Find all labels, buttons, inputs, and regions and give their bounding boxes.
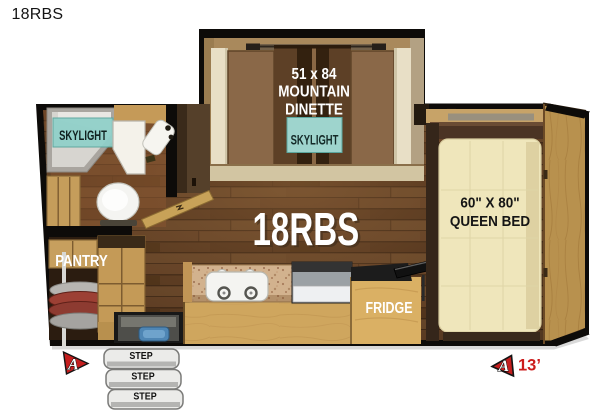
svg-text:A: A <box>67 357 79 374</box>
svg-text:STEP: STEP <box>133 391 157 403</box>
svg-text:QUEEN BED: QUEEN BED <box>450 213 530 230</box>
svg-text:60" X 80": 60" X 80" <box>460 195 519 212</box>
svg-text:STEP: STEP <box>131 371 155 383</box>
svg-text:DINETTE: DINETTE <box>285 102 343 119</box>
svg-text:18RBS: 18RBS <box>12 6 64 23</box>
svg-text:SKYLIGHT: SKYLIGHT <box>59 128 107 143</box>
svg-text:13’: 13’ <box>518 357 541 375</box>
svg-text:51 x 84: 51 x 84 <box>292 66 337 83</box>
svg-text:PANTRY: PANTRY <box>55 253 108 270</box>
svg-text:STEP: STEP <box>129 350 153 362</box>
svg-text:MOUNTAIN: MOUNTAIN <box>278 84 350 101</box>
svg-text:SKYLIGHT: SKYLIGHT <box>291 133 339 148</box>
svg-text:A: A <box>498 358 510 375</box>
svg-text:18RBS: 18RBS <box>253 205 360 255</box>
svg-text:FRIDGE: FRIDGE <box>365 300 412 318</box>
